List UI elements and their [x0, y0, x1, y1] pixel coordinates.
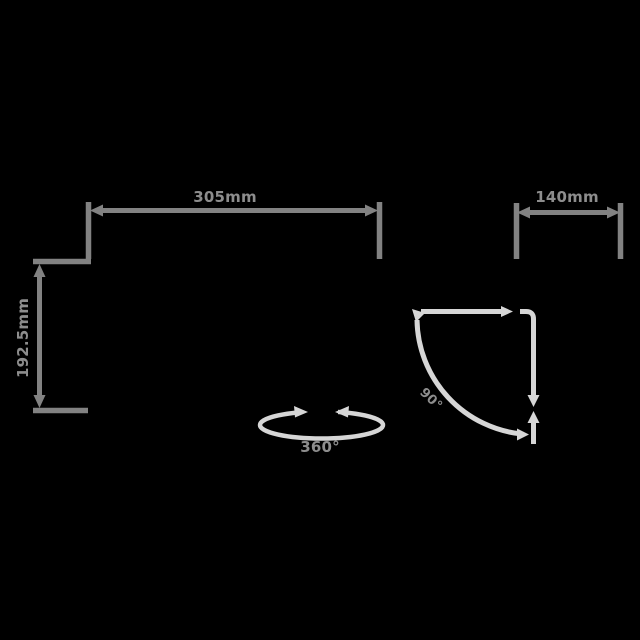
- depth-dimension-label: 140mm: [535, 188, 599, 206]
- width-arrow-right-icon: [365, 205, 378, 217]
- height-arrow-up-icon: [34, 264, 46, 277]
- width-dimension: 305mm: [89, 188, 380, 259]
- quadrant-arc: [417, 320, 523, 434]
- quadrant-top-arrow-right-icon: [501, 306, 513, 317]
- quadrant-corner-piece: [520, 312, 534, 399]
- quadrant-right-arrow-down-icon: [528, 395, 540, 407]
- quadrant-figure: 90°: [412, 306, 540, 444]
- dimension-diagram: 305mm 192.5mm 140mm: [0, 0, 640, 640]
- quadrant-arc-arrow-end-icon: [517, 429, 529, 441]
- depth-dimension: 140mm: [517, 188, 621, 259]
- width-arrow-left-icon: [90, 205, 103, 217]
- diagram-canvas: 305mm 192.5mm 140mm: [0, 0, 640, 640]
- height-dimension-label: 192.5mm: [14, 298, 32, 378]
- width-dimension-label: 305mm: [193, 188, 257, 206]
- rotation-indicator: 360°: [260, 405, 383, 456]
- rotation-label: 360°: [300, 438, 340, 456]
- height-dimension: 192.5mm: [14, 262, 91, 411]
- height-arrow-down-icon: [34, 395, 46, 408]
